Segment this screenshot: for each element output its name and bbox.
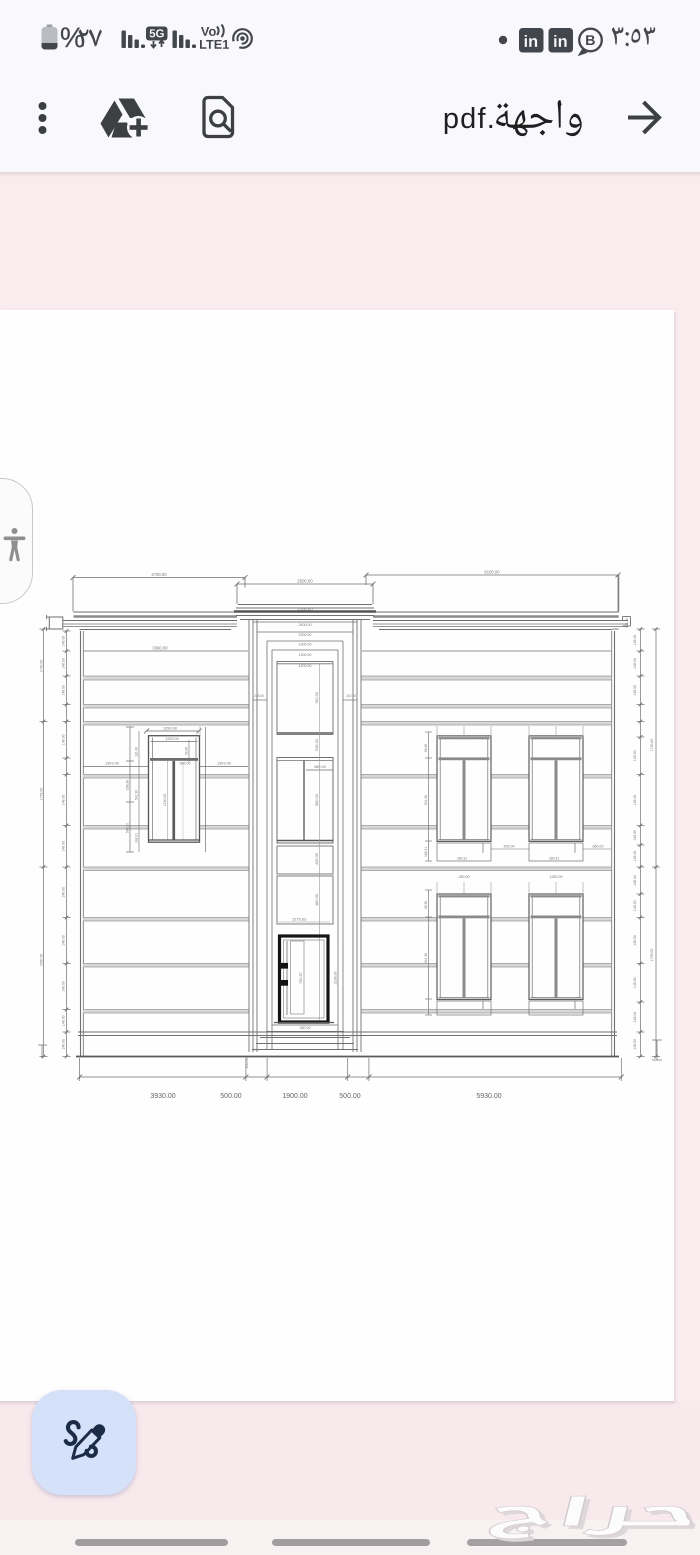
svg-text:148.00: 148.00 [633,658,637,669]
svg-text:96.36: 96.36 [424,901,428,909]
svg-text:148.00: 148.00 [633,900,637,911]
svg-text:1200.00: 1200.00 [165,737,178,741]
svg-text:148.00: 148.00 [62,841,66,852]
svg-text:148.00: 148.00 [62,636,66,647]
svg-text:148.00: 148.00 [633,750,637,761]
svg-text:148.00: 148.00 [633,875,637,886]
svg-text:1303.00: 1303.00 [217,761,232,766]
svg-text:596.00: 596.00 [126,823,130,833]
svg-text:215.00: 215.00 [254,694,264,698]
svg-text:2500.00: 2500.00 [297,579,313,584]
svg-text:3360.00: 3360.00 [152,646,168,651]
svg-text:148.00: 148.00 [633,635,637,646]
svg-text:585.00: 585.00 [180,762,191,766]
svg-text:1290.00: 1290.00 [163,725,178,730]
svg-text:148.00: 148.00 [62,658,66,669]
svg-text:148.00: 148.00 [62,734,66,745]
svg-text:148.00: 148.00 [633,935,637,946]
svg-text:480.00: 480.00 [315,894,319,906]
svg-text:580.00: 580.00 [314,765,326,769]
svg-text:2100.00: 2100.00 [297,607,313,612]
svg-text:5930.00: 5930.00 [476,1093,501,1100]
svg-text:1753.00: 1753.00 [650,949,654,962]
svg-text:1303.00: 1303.00 [105,761,120,766]
svg-text:148.00: 148.00 [62,935,66,946]
svg-text:298.36: 298.36 [126,780,130,790]
svg-text:1740.00: 1740.00 [650,739,654,752]
svg-text:1740.00: 1740.00 [40,660,44,673]
svg-text:148.00: 148.00 [62,795,66,806]
svg-text:500.00: 500.00 [220,1093,242,1100]
svg-text:148.00: 148.00 [62,1039,66,1050]
svg-text:1900.00: 1900.00 [282,1093,307,1100]
svg-text:536.33: 536.33 [315,739,319,751]
svg-text:4700.00: 4700.00 [151,572,167,577]
svg-text:148.00: 148.00 [633,1012,637,1023]
svg-text:96.36: 96.36 [424,744,428,752]
svg-text:541.36: 541.36 [424,953,428,963]
svg-text:148.00: 148.00 [633,685,637,696]
svg-text:400.00: 400.00 [315,853,319,865]
svg-text:1300.00: 1300.00 [299,653,312,657]
svg-text:1500.36: 1500.36 [40,954,44,967]
svg-text:580.00: 580.00 [315,794,319,806]
svg-text:148.00: 148.00 [62,981,66,992]
svg-text:1240.00: 1240.00 [163,794,167,807]
svg-text:148.00: 148.00 [633,830,637,841]
svg-text:188.31: 188.31 [135,833,139,843]
svg-text:148.00: 148.00 [62,1015,66,1026]
svg-text:1753.00: 1753.00 [40,788,44,801]
svg-text:420.00: 420.00 [504,845,515,849]
svg-text:210.00: 210.00 [346,694,356,698]
svg-text:188.31: 188.31 [424,847,428,857]
svg-text:280.00: 280.00 [459,875,470,879]
svg-text:280.31: 280.31 [549,857,559,861]
svg-text:1280.00: 1280.00 [550,875,563,879]
svg-text:500.00: 500.00 [339,1093,361,1100]
svg-text:148.00: 148.00 [633,1039,637,1050]
svg-text:6100.00: 6100.00 [484,570,500,575]
svg-text:3930.00: 3930.00 [150,1093,175,1100]
svg-text:116.36: 116.36 [135,747,139,757]
svg-text:2400.00: 2400.00 [299,623,312,627]
svg-text:1275.63: 1275.63 [292,917,306,922]
svg-text:148.00: 148.00 [633,795,637,806]
svg-text:148.00: 148.00 [62,685,66,696]
svg-text:541.36: 541.36 [424,795,428,805]
svg-text:280.31: 280.31 [457,857,467,861]
svg-text:148.00: 148.00 [633,977,637,988]
svg-text:782.00: 782.00 [315,692,319,704]
svg-text:860.00: 860.00 [593,845,604,849]
svg-text:280.00: 280.00 [300,1026,311,1030]
svg-text:98.36: 98.36 [184,747,188,755]
svg-text:790.57: 790.57 [299,972,303,984]
svg-text:541.36: 541.36 [135,790,139,800]
svg-text:2300.00: 2300.00 [299,633,312,637]
svg-text:101.36: 101.36 [625,618,629,628]
svg-text:1900.00: 1900.00 [299,643,312,647]
svg-text:148.00: 148.00 [633,851,637,862]
svg-text:2138.36: 2138.36 [334,972,338,985]
svg-text:148.00: 148.00 [62,887,66,898]
svg-text:1200.00: 1200.00 [299,664,312,668]
